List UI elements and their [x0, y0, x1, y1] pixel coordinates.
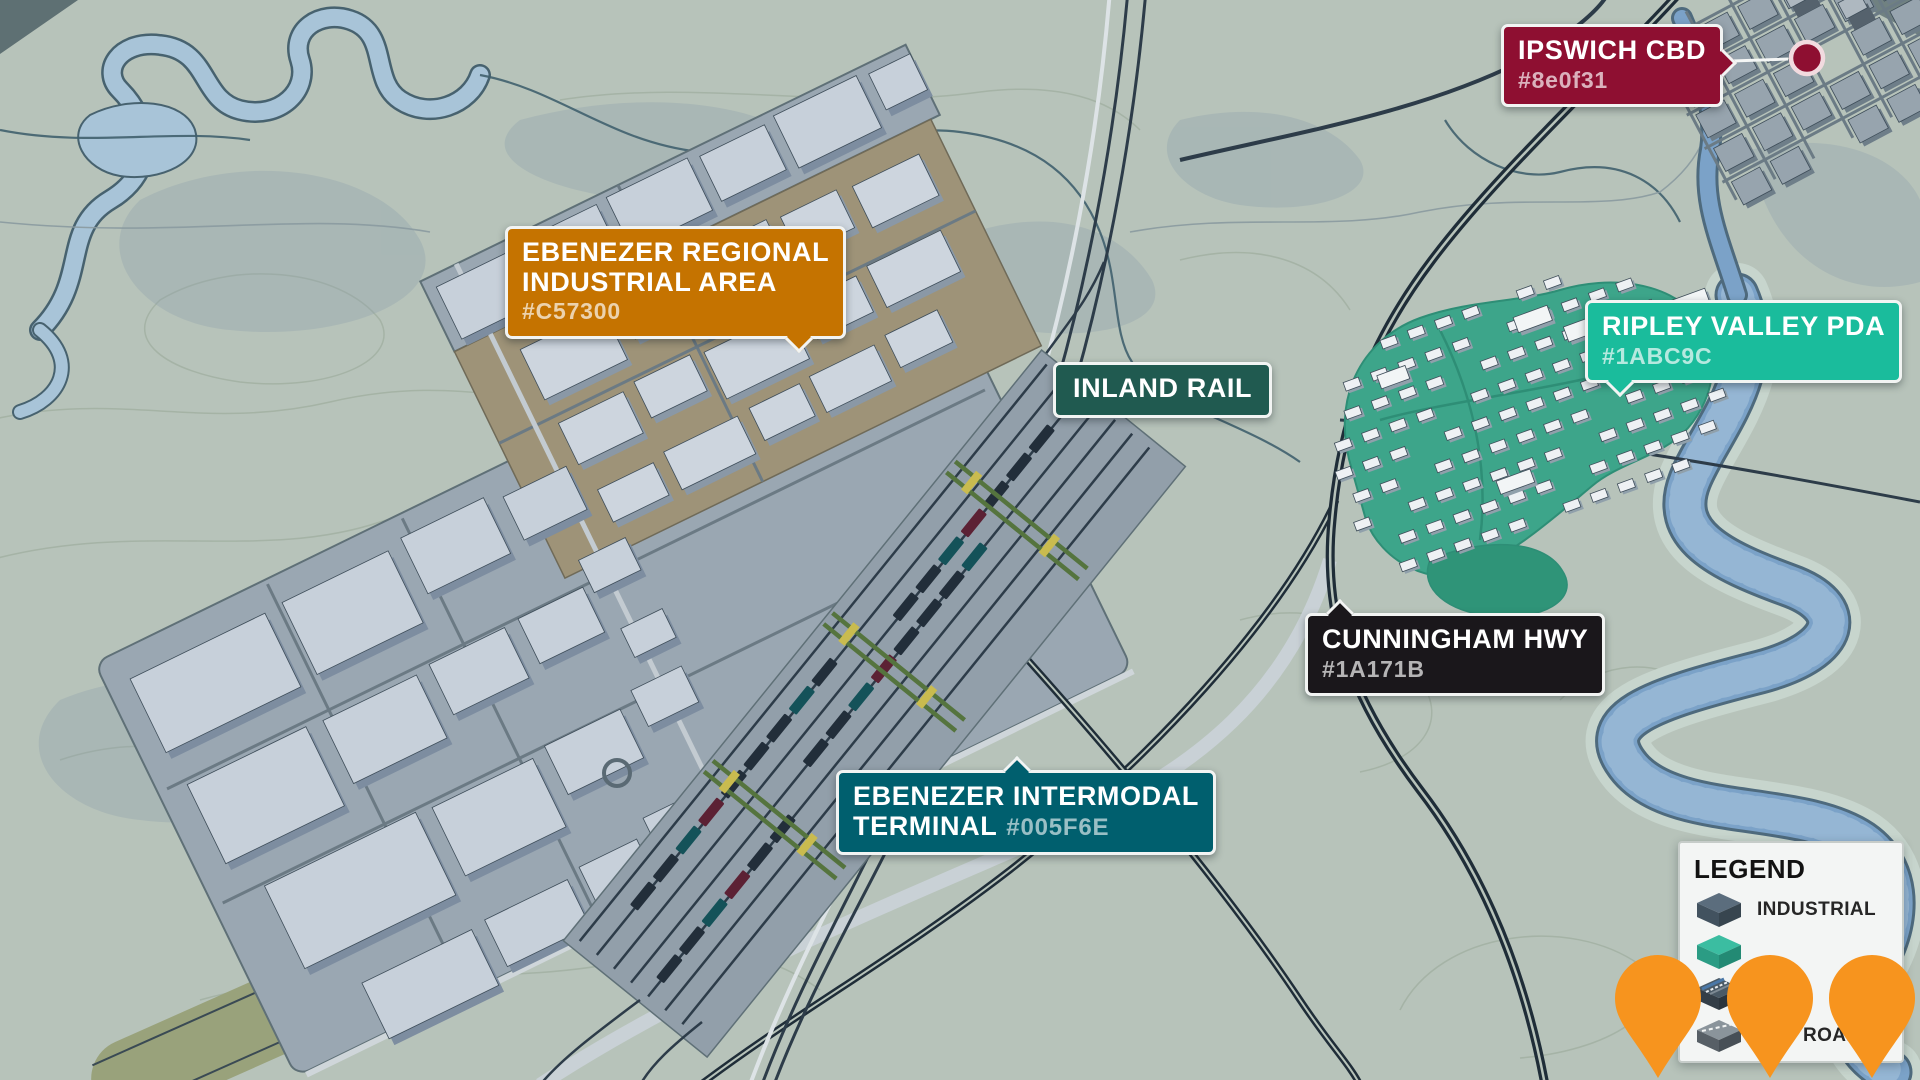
legend-item-industrial: INDUSTRIAL [1692, 889, 1890, 931]
badge-hex: #8e0f31 [1518, 68, 1706, 93]
badge-ripley-valley[interactable]: RIPLEY VALLEY PDA #1ABC9C [1585, 300, 1902, 383]
legend-title: LEGEND [1694, 854, 1890, 885]
badge-hex: #1ABC9C [1602, 344, 1885, 369]
residential-icon [1692, 932, 1746, 972]
badge-hex: #C57300 [522, 299, 829, 324]
badge-hex: #1A171B [1322, 657, 1588, 682]
badge-cunningham-hwy[interactable]: CUNNINGHAM HWY #1A171B [1305, 613, 1605, 696]
badge-intermodal-terminal[interactable]: EBENEZER INTERMODAL TERMINAL#005F6E [836, 770, 1216, 855]
badge-inland-rail[interactable]: INLAND RAIL [1053, 362, 1272, 418]
cbd-marker-dot[interactable] [1791, 42, 1823, 74]
map-stage: IPSWICH CBD #8e0f31 EBENEZER REGIONAL IN… [0, 0, 1920, 1080]
industrial-icon [1692, 890, 1746, 930]
map-canvas [0, 0, 1920, 1080]
badge-title: CUNNINGHAM HWY [1322, 625, 1588, 655]
badge-ebenezer-regional[interactable]: EBENEZER REGIONAL INDUSTRIAL AREA #C5730… [505, 226, 846, 339]
badge-title: INLAND RAIL [1073, 374, 1252, 404]
badge-title: TERMINAL#005F6E [853, 812, 1199, 842]
badge-ipswich-cbd[interactable]: IPSWICH CBD #8e0f31 [1501, 24, 1723, 107]
badge-title: EBENEZER INTERMODAL [853, 782, 1199, 812]
badge-title: IPSWICH CBD [1518, 36, 1706, 66]
badge-title: RIPLEY VALLEY PDA [1602, 312, 1885, 342]
badge-title: EBENEZER REGIONAL [522, 238, 829, 268]
badge-hex: #005F6E [1006, 814, 1109, 841]
badge-title: INDUSTRIAL AREA [522, 268, 829, 298]
